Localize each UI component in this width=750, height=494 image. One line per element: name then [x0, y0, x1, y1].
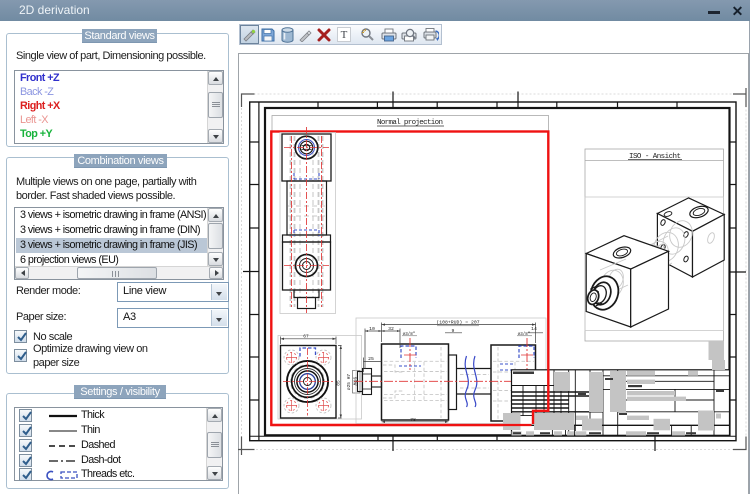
svg-text:M16: M16 [353, 377, 359, 385]
svg-text:⌀25 H7: ⌀25 H7 [346, 374, 352, 391]
svg-text:10: 10 [369, 326, 375, 332]
svg-text:67: 67 [303, 334, 309, 340]
svg-text:(108+RUD) = 207: (108+RUD) = 207 [436, 320, 479, 326]
svg-text:78: 78 [410, 417, 416, 423]
svg-text:25: 25 [368, 356, 374, 362]
svg-text:32: 32 [388, 326, 394, 332]
svg-text:85: 85 [336, 380, 342, 386]
svg-text:14: 14 [531, 326, 537, 332]
svg-text:9: 9 [452, 328, 455, 334]
